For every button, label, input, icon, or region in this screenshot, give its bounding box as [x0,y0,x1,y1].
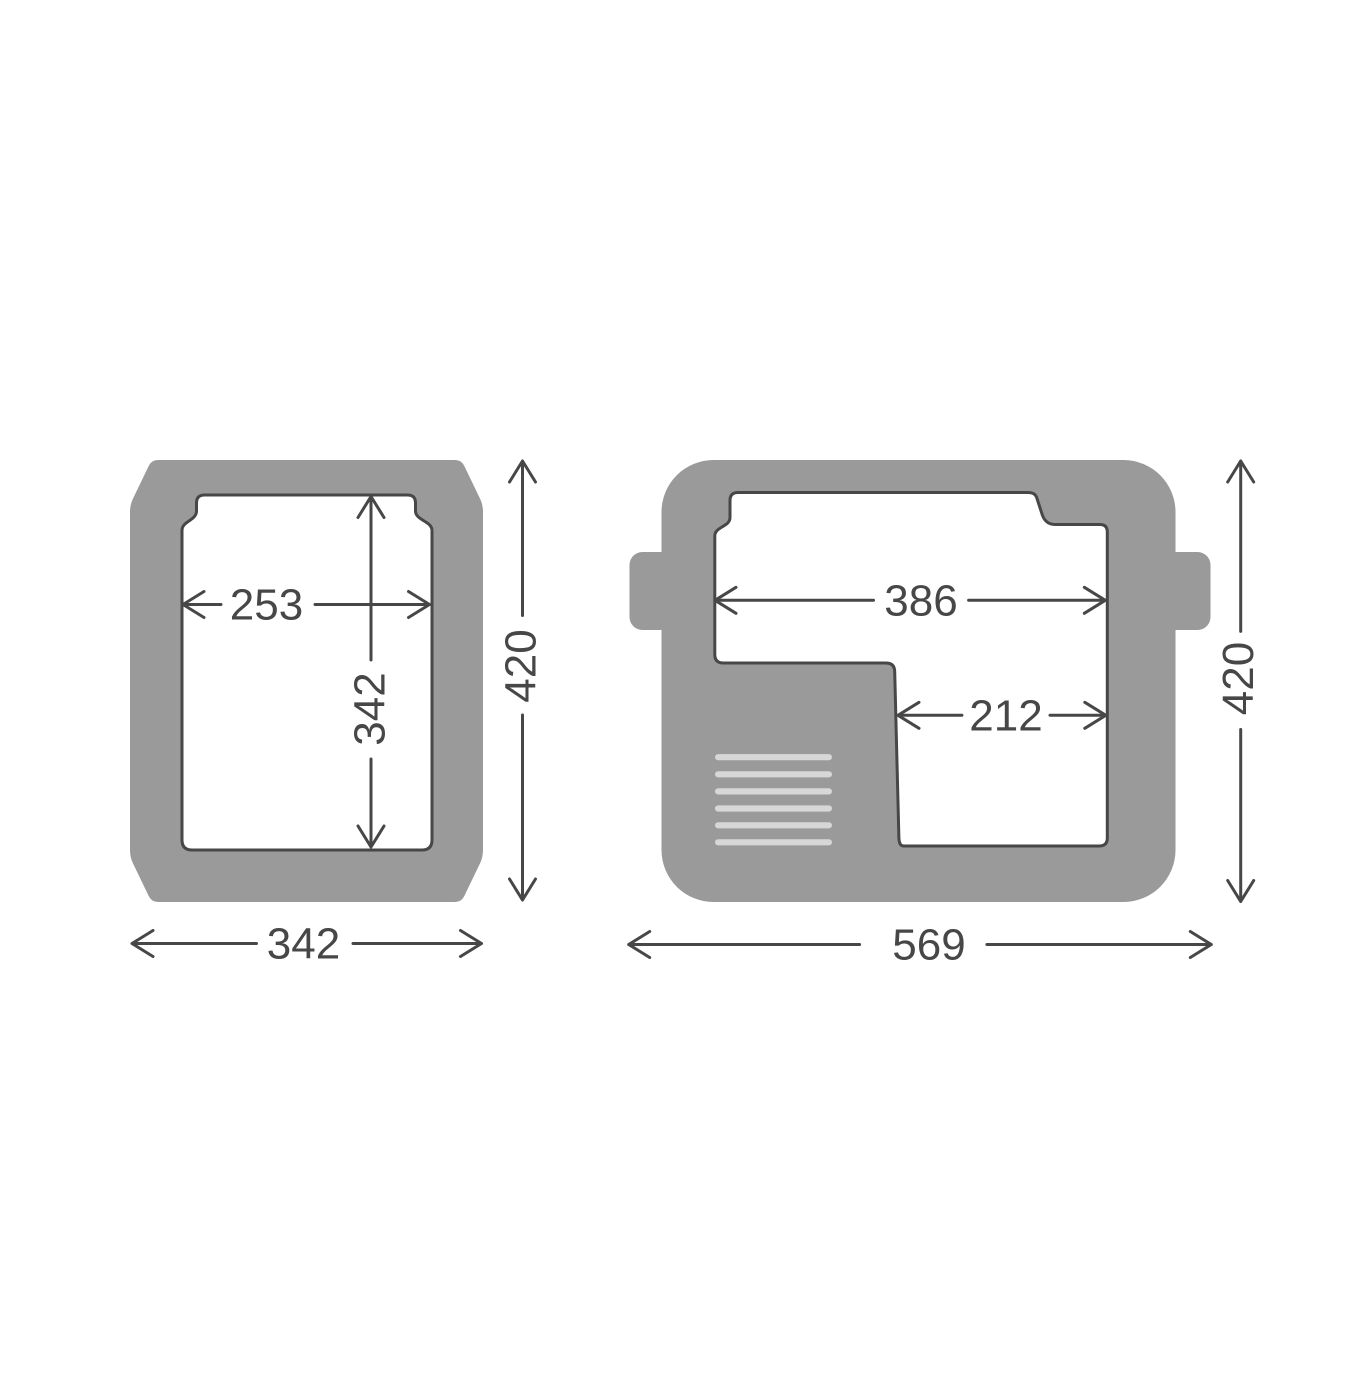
svg-text:253: 253 [230,581,303,630]
svg-text:342: 342 [267,920,340,969]
svg-text:386: 386 [884,576,957,625]
svg-text:420: 420 [497,629,546,702]
svg-text:569: 569 [892,921,965,970]
svg-text:212: 212 [969,691,1042,740]
svg-text:342: 342 [346,672,395,745]
svg-text:420: 420 [1214,642,1263,715]
